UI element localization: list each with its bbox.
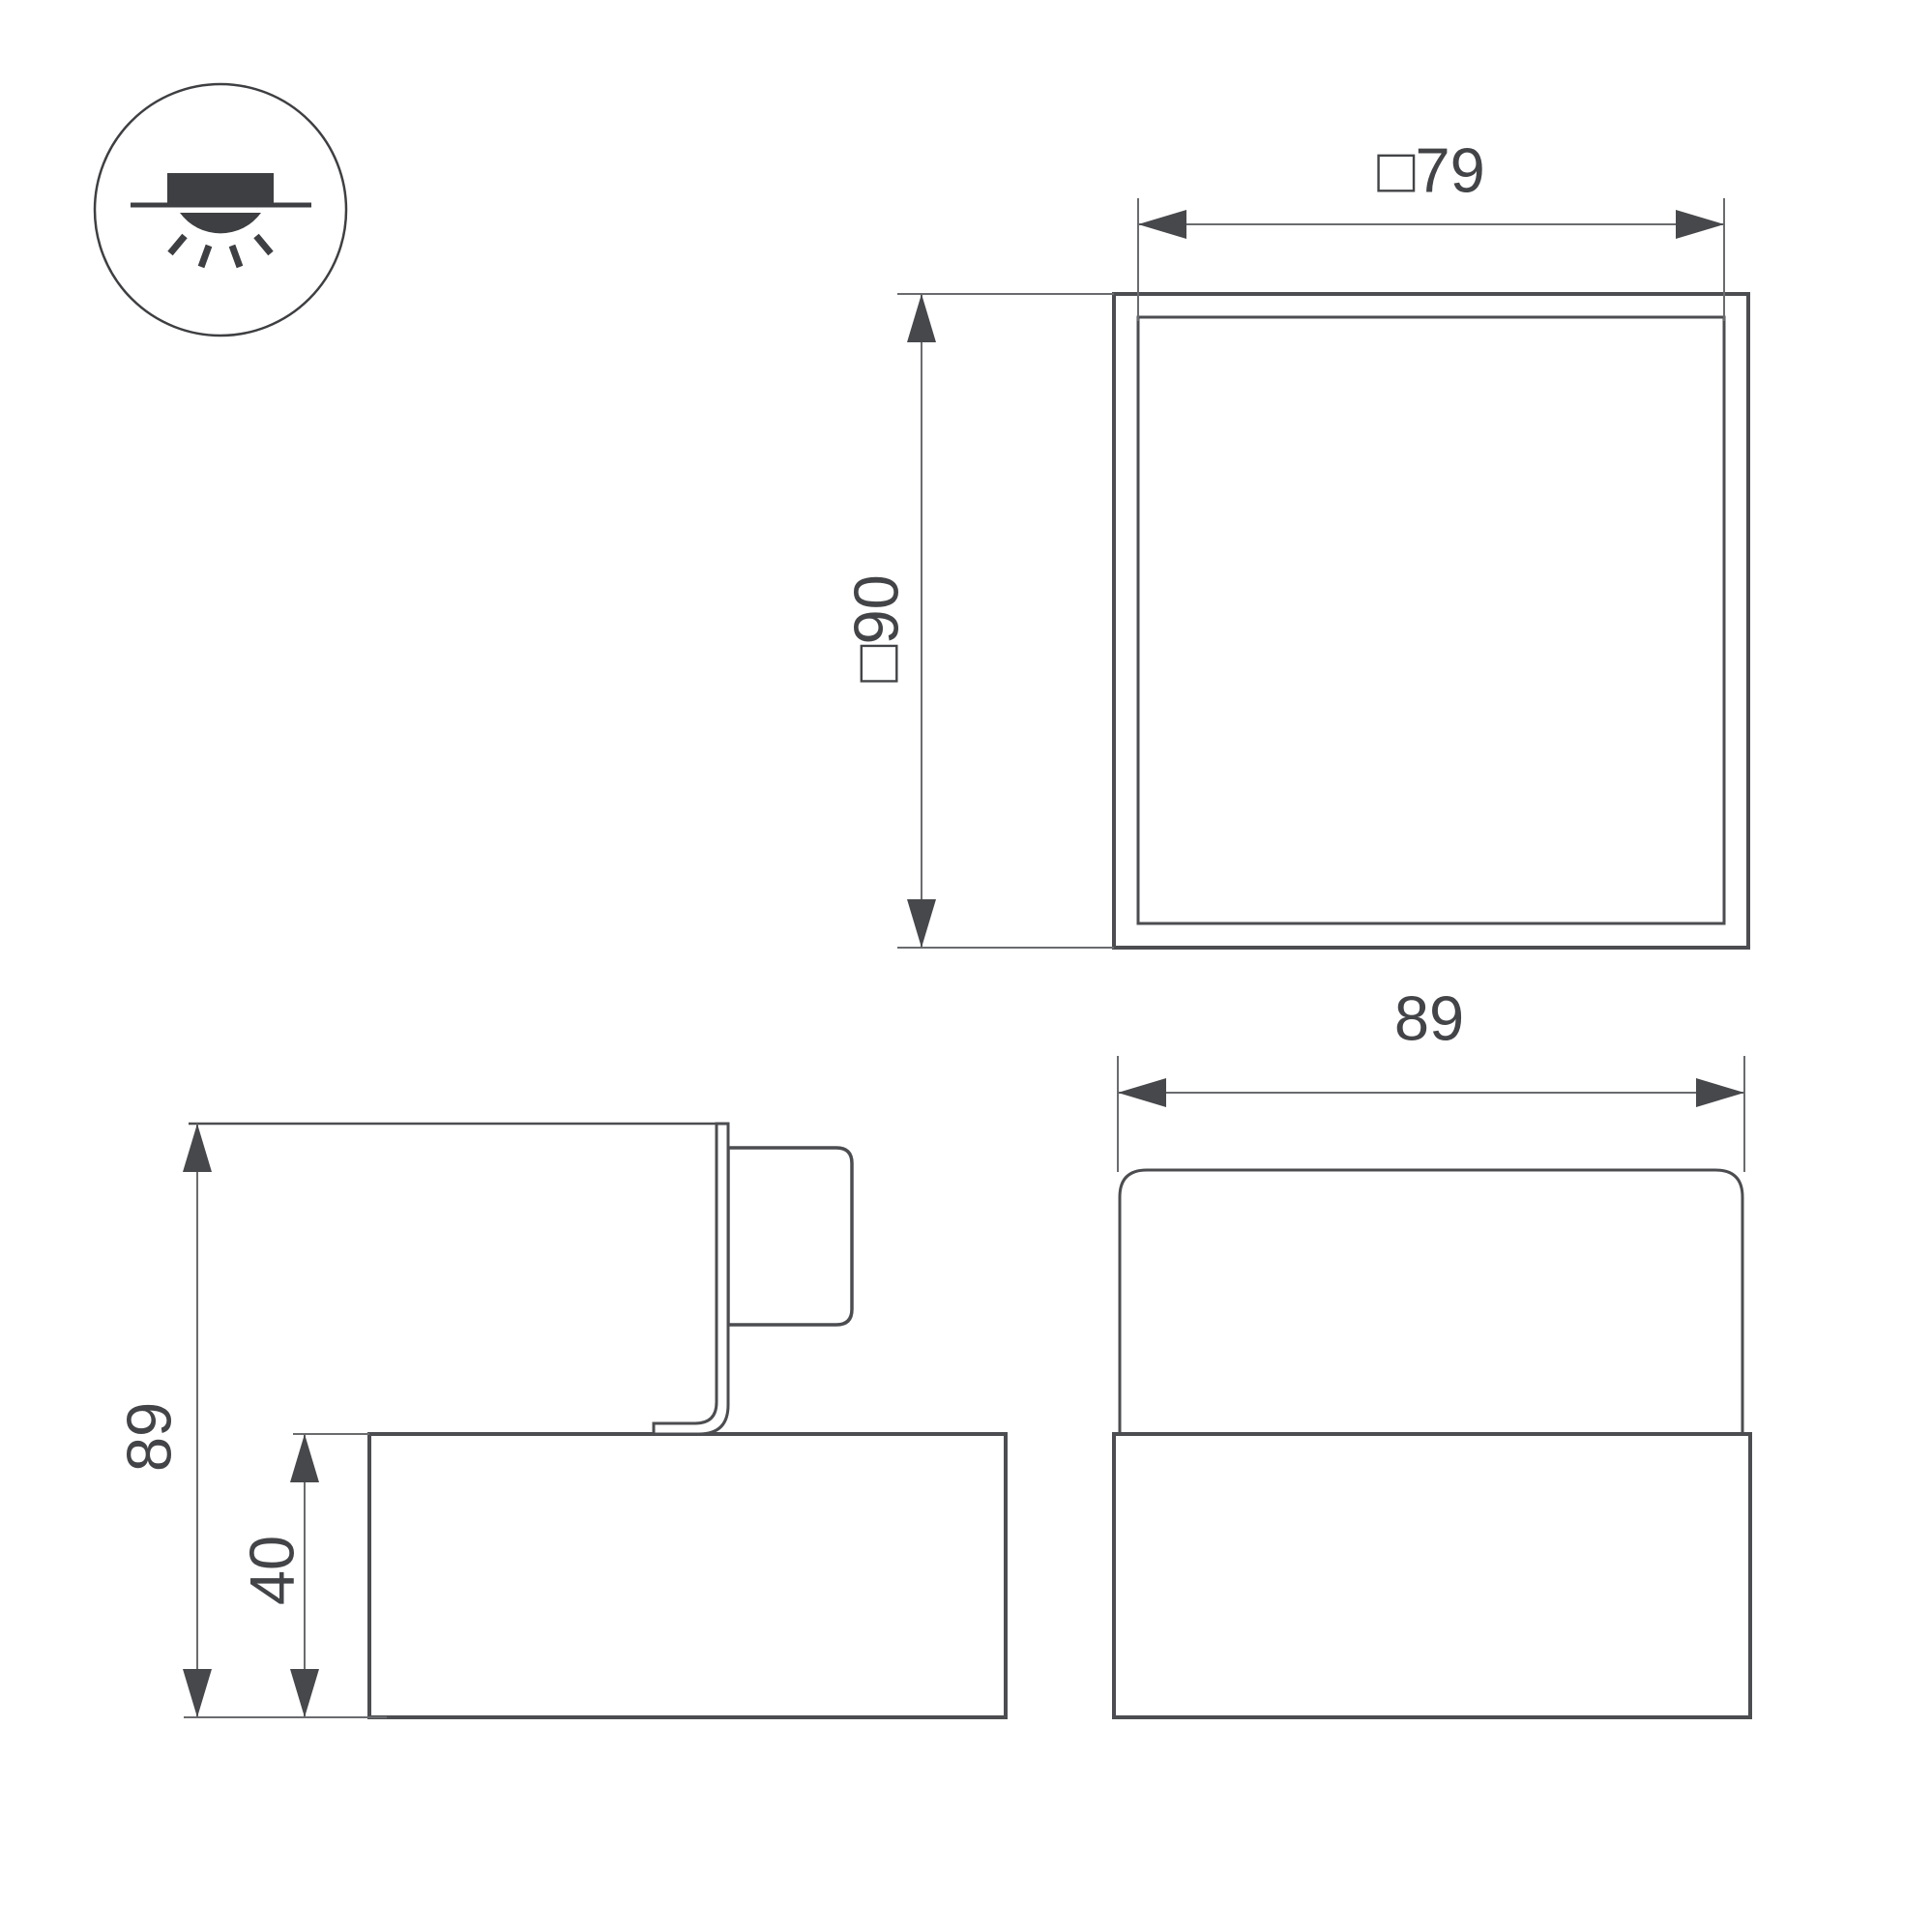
technical-drawing-canvas: □79 □90 89 40	[0, 0, 1932, 1932]
top-view-inner-square	[1138, 317, 1724, 923]
dimension-top-height: □90	[841, 294, 1115, 948]
side-view: 89 40	[114, 1124, 1007, 1717]
front-view: 89	[1114, 983, 1750, 1718]
side-view-base	[369, 1434, 1006, 1717]
front-view-base	[1114, 1434, 1750, 1717]
icon-badge-circle	[95, 84, 346, 336]
top-view: □79 □90	[841, 135, 1749, 949]
icon-light-rays	[170, 236, 271, 267]
icon-lamp-dome	[180, 213, 261, 233]
side-view-mounting-bracket	[654, 1124, 728, 1434]
dimension-label: □90	[841, 574, 912, 683]
dimension-side-overall-height: 89	[114, 1124, 388, 1717]
dimension-label: 89	[1394, 983, 1464, 1054]
side-view-driver-box	[728, 1148, 852, 1325]
surface-mounted-downlight-icon	[95, 84, 346, 336]
dimension-label: 40	[237, 1536, 307, 1605]
dimension-label: 89	[114, 1402, 185, 1472]
dimension-label: □79	[1377, 135, 1485, 206]
icon-fixture-body	[167, 173, 274, 204]
front-view-head	[1120, 1170, 1742, 1434]
dimension-side-base-height: 40	[237, 1434, 370, 1717]
dimension-front-width: 89	[1118, 983, 1744, 1173]
